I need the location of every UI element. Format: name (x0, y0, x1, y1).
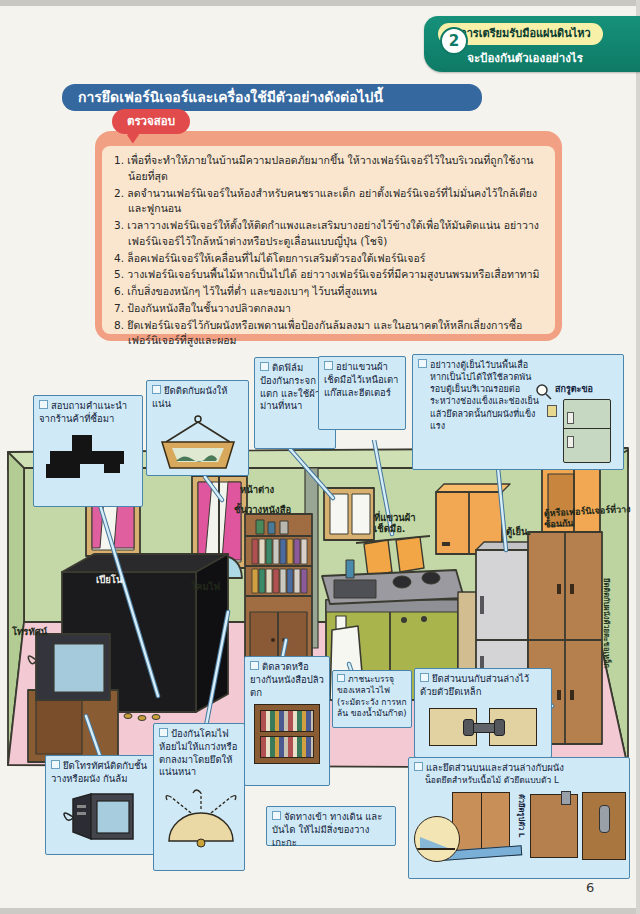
callout-towel-text: อย่าแขวนผ้าเช็ดมือไว้เหนือเตาแก๊สและฮีตเ… (324, 361, 398, 398)
callout-towel: อย่าแขวนผ้าเช็ดมือไว้เหนือเตาแก๊สและฮีตเ… (318, 356, 406, 430)
mini-cabinet-1 (452, 792, 510, 852)
mini-cabinet-2 (530, 794, 578, 858)
magnifier-circle (414, 816, 460, 862)
piano-caster-illustration (46, 431, 130, 481)
lamp-anchor-illustration (159, 787, 243, 849)
callout-clear-path-text: จัดทางเข้า ทางเดิน และบันได ให้ไม่มีสิ่ง… (272, 811, 382, 848)
callout-wall-anchor-line1: และยึดส่วนบนและส่วนล่างกับผนัง (426, 762, 564, 773)
l-bracket-label: ตัวยึดรูปตัว L (516, 794, 526, 838)
section-title-banner: การยึดเฟอร์นิเจอร์และเครื่องใช้มีตัวอย่า… (62, 84, 482, 111)
bookshelf-illustration (254, 704, 320, 764)
checklist-item: 4. ล็อคเฟอร์นิเจอร์ให้เคลื่อนที่ไม่ได้โด… (114, 251, 543, 267)
callout-wall-anchor-line2: น็อตยึดสำหรับเนื้อไม้ ตัวยึดแบบตัว L (414, 775, 624, 786)
checklist-item: 6. เก็บสิ่งของหนักๆ ไว้ในที่ต่ำ และของเบ… (114, 284, 543, 300)
scanned-manual-page: 2 การเตรียมรับมือแผ่นดินไหว จะป้องกันตัว… (0, 0, 640, 914)
scan-edge-bottom (0, 908, 640, 914)
callout-wall-anchor: และยึดส่วนบนและส่วนล่างกับผนัง น็อตยึดสำ… (408, 757, 630, 879)
checkbox-icon (159, 728, 168, 737)
checklist-inner: 1. เพื่อที่จะทำให้ภายในบ้านมีความปลอดภัย… (102, 146, 555, 334)
checkbox-icon (250, 661, 259, 670)
callout-flammable: ภาชนะบรรจุของเหลวไวไฟ (ระมัดระวัง การหกล… (332, 670, 412, 728)
label-bookshelf: ชั้นวางหนังสือ (234, 504, 291, 515)
hook-screw-label: สกรูตะขอ (555, 383, 593, 395)
checkbox-icon (418, 359, 427, 368)
checklist-item: 3. เวลาวางเฟอร์นิเจอร์ให้ตั้งให้ติดกำแพง… (114, 218, 543, 250)
callout-clear-path: จัดทางเข้า ทางเดิน และบันได ให้ไม่มีสิ่ง… (266, 806, 396, 846)
mini-cabinet-3 (582, 792, 626, 860)
label-window: หน้าต่าง (240, 484, 274, 495)
callout-tv-text: ยึดโทรทัศน์ติดกับชั้นวางหรือผนัง กันล้ม (51, 760, 147, 784)
checkbox-icon (414, 762, 423, 771)
label-towel-rail: ที่แขวนผ้าเช็ดมือ. (374, 512, 422, 535)
checklist-item: 1. เพื่อที่จะทำให้ภายในบ้านมีความปลอดภัย… (114, 153, 543, 185)
checkbox-icon (324, 361, 333, 370)
checklist-item: 2. ลดจำนวนเฟอร์นิเจอร์ในห้องสำหรับคนชราแ… (114, 186, 543, 218)
label-wall-fix-vertical: ยึดติดกับผนังด้วยตะขอเหล็ก (602, 578, 611, 746)
callout-books: ติดลวดหรือยางกันหนังสือปลิวตก (244, 656, 330, 786)
checkbox-icon (272, 811, 281, 820)
page-number: 6 (586, 880, 594, 895)
chapter-tab: 2 การเตรียมรับมือแผ่นดินไหว จะป้องกันตัว… (424, 16, 640, 72)
fridge-wire-illustration: สกรูตะขอ (535, 381, 619, 465)
checkbox-icon (420, 673, 429, 682)
magnifier-icon (535, 383, 553, 401)
checklist-box: 1. เพื่อที่จะทำให้ภายในบ้านมีความปลอดภัย… (95, 131, 562, 341)
checkbox-icon (51, 760, 60, 769)
checklist-item: 7. ป้องกันหนังสือในชั้นวางปลิวตกลงมา (114, 301, 543, 317)
callout-frame: ยึดติดกับผนังให้แน่น (146, 380, 249, 476)
screw-icon (547, 405, 557, 417)
callout-film-text: ติดฟิล์มป้องกันกระจกแตก และใช้ผ้าม่านที่… (260, 362, 320, 411)
check-speech-bubble: ตรวจสอบ (112, 109, 190, 134)
callout-refrigerator-text: อย่าวางตู้เย็นไว้บนพื้นเสื่อ หากเป็นไปได… (430, 359, 544, 432)
mini-fridge (563, 399, 611, 463)
callout-lamp: ป้องกันโคมไฟห้อยไม่ให้แกว่งหรือตกลงมาโดย… (153, 723, 245, 871)
checkbox-icon (260, 362, 269, 371)
label-fridge: ตู้เย็น. (506, 526, 531, 537)
checkbox-icon (152, 385, 161, 394)
chapter-tab-title: การเตรียมรับมือแผ่นดินไหว (460, 27, 591, 40)
checkbox-icon (337, 674, 345, 682)
callout-advice-text: สอบถามคำแนะนำจากร้านค้าที่ซื้อมา (39, 400, 127, 424)
scan-edge-top (0, 0, 640, 6)
label-piano: เปียโน (96, 574, 122, 585)
callout-advice: สอบถามคำแนะนำจากร้านค้าที่ซื้อมา (33, 395, 143, 507)
callout-lamp-text: ป้องกันโคมไฟห้อยไม่ให้แกว่งหรือตกลงมาโดย… (159, 728, 237, 777)
chapter-tab-title-pill: 2 การเตรียมรับมือแผ่นดินไหว (438, 23, 603, 45)
checklist-item: 5. วางเฟอร์นิเจอร์บนพื้นไม้หากเป็นไปได้ … (114, 267, 543, 283)
callout-refrigerator: อย่าวางตู้เย็นไว้บนพื้นเสื่อ หากเป็นไปได… (412, 354, 624, 470)
wall-anchor-illustration: ตัวยึดรูปตัว L (414, 790, 624, 866)
callout-books-text: ติดลวดหรือยางกันหนังสือปลิวตก (250, 661, 324, 698)
callout-flammable-text: ภาชนะบรรจุของเหลวไวไฟ (ระมัดระวัง การหกล… (337, 674, 407, 718)
metal-fastener-illustration (427, 704, 539, 748)
checklist-item: 8. ยึดเฟอร์นิเจอร์ไว้กับผนังหรือเพดานเพื… (114, 318, 543, 350)
chapter-tab-subtitle: จะป้องกันตัวเองอย่างไร (424, 49, 626, 67)
tv-illustration (57, 789, 145, 843)
callout-tv: ยึดโทรทัศน์ติดกับชั้นวางหรือผนัง กันล้ม (45, 755, 157, 855)
callout-frame-text: ยึดติดกับผนังให้แน่น (152, 385, 227, 409)
label-tv: โทรทัศน์ (12, 626, 47, 637)
picture-frame-illustration (152, 414, 244, 470)
callout-bracket-text: ยึดส่วนบนกับส่วนล่างไว้ด้วยตัวยึดเหล็ก (420, 673, 529, 697)
callout-bracket: ยึดส่วนบนกับส่วนล่างไว้ด้วยตัวยึดเหล็ก (414, 668, 552, 758)
checkbox-icon (39, 400, 48, 409)
label-lamp: โคมไฟ (191, 581, 220, 592)
